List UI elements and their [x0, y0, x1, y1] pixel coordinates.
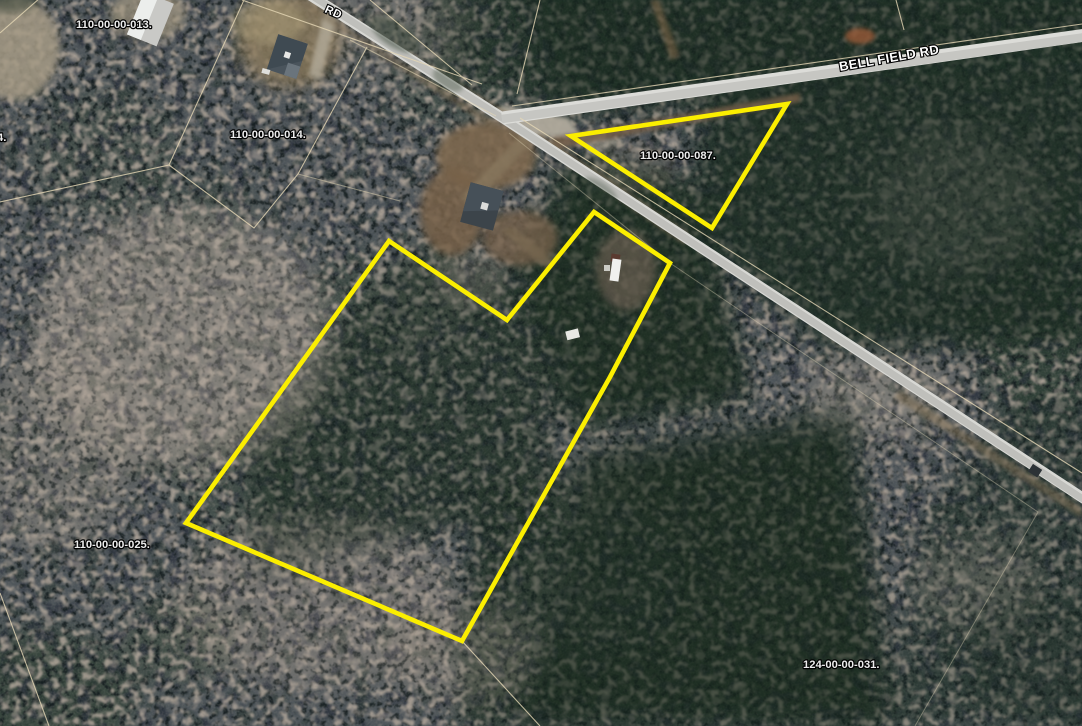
svg-text:124-00-00-031.: 124-00-00-031.: [803, 659, 880, 671]
svg-text:110-00-00-014.: 110-00-00-014.: [230, 129, 306, 141]
svg-text:110-00-00-013.: 110-00-00-013.: [76, 19, 152, 31]
svg-text:110-00-00-087.: 110-00-00-087.: [640, 150, 716, 162]
svg-text:110-00-00-025.: 110-00-00-025.: [74, 539, 150, 551]
svg-text:4.: 4.: [0, 132, 6, 144]
